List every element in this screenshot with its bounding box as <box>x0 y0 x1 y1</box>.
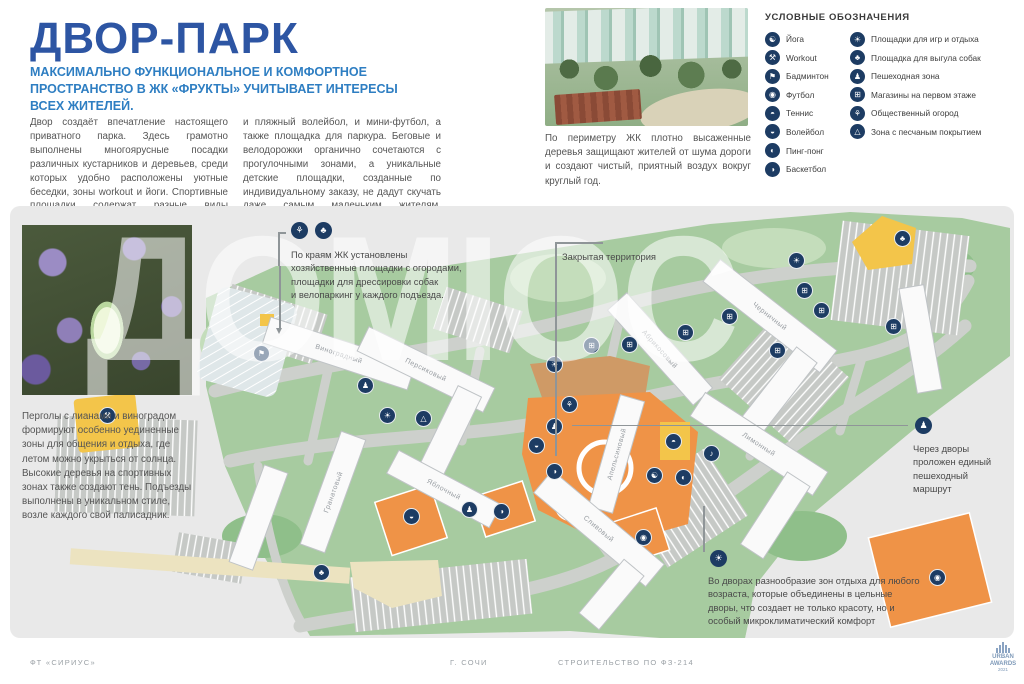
basketball-icon: ◑ <box>493 503 510 520</box>
yoga-icon: ☯ <box>646 467 663 484</box>
footer-law: СТРОИТЕЛЬСТВО ПО ФЗ-214 <box>558 658 694 667</box>
tennis-icon: ◓ <box>665 433 682 450</box>
legend-item: ◒Волейбол <box>765 125 849 139</box>
basketball-icon: ◑ <box>546 463 563 480</box>
shops-icon: ⊞ <box>769 342 786 359</box>
pedestrian-icon: ♟ <box>850 69 865 84</box>
aerial-photo-caption: По периметру ЖК плотно высаженные деревь… <box>545 132 751 189</box>
legend-item: △Зона с песчаным покрытием <box>850 125 1020 139</box>
playground-icon: ☀ <box>850 32 865 47</box>
playground-icon: ☀ <box>710 550 727 567</box>
sand-icon: △ <box>415 410 432 427</box>
legend-col-2: ☀Площадки для игр и отдыха♣Площадка для … <box>850 32 1020 144</box>
shops-icon: ⊞ <box>721 308 738 325</box>
workout-icon: ⚒ <box>765 50 780 65</box>
legend-item-label: Футбол <box>786 90 814 100</box>
legend-item-label: Магазины на первом этаже <box>871 90 976 100</box>
legend-item: ♟Пешеходная зона <box>850 69 1020 83</box>
badminton-icon: ⚑ <box>253 345 270 362</box>
footer-project: ФТ «СИРИУС» <box>30 658 96 667</box>
callout-edges: По краям ЖК установлены хозяйственные пл… <box>291 248 462 301</box>
dog-walking-icon: ♣ <box>894 230 911 247</box>
legend-item: ☀Площадки для игр и отдыха <box>850 32 1020 46</box>
urban-awards-text1: URBAN <box>986 654 1020 661</box>
volleyball-icon: ◒ <box>528 437 545 454</box>
legend-item: ♣Площадка для выгула собак <box>850 51 1020 65</box>
football-icon: ◉ <box>635 529 652 546</box>
legend-item-label: Общественный огород <box>871 108 958 118</box>
legend-item-label: Workout <box>786 53 817 63</box>
page-subtitle: МАКСИМАЛЬНО ФУНКЦИОНАЛЬНОЕ И КОМФОРТНОЕ … <box>30 64 410 115</box>
legend-heading: УСЛОВНЫЕ ОБОЗНАЧЕНИЯ <box>765 12 910 23</box>
football-icon: ◉ <box>765 87 780 102</box>
legend-item-label: Площадки для игр и отдыха <box>871 34 979 44</box>
legend-item-label: Йога <box>786 34 804 44</box>
legend-item: ⊞Магазины на первом этаже <box>850 88 1020 102</box>
yoga-icon: ☯ <box>765 32 780 47</box>
legend-item-label: Пешеходная зона <box>871 71 940 81</box>
shops-icon: ⊞ <box>885 318 902 335</box>
legend-item: ☯Йога <box>765 32 849 46</box>
garden-icon: ⚘ <box>291 222 308 239</box>
urban-awards-crown <box>986 642 1020 653</box>
legend-item-label: Баскетбол <box>786 164 826 174</box>
legend-col-1: ☯Йога⚒Workout⚑Бадминтон◉Футбол◓Теннис◒Во… <box>765 32 849 181</box>
legend-item: ◐Пинг-понг <box>765 144 849 158</box>
pedestrian-icon: ♟ <box>915 417 932 434</box>
aerial-photo-pergola <box>554 89 642 125</box>
dog-walking-icon: ♣ <box>850 50 865 65</box>
shops-icon: ⊞ <box>850 87 865 102</box>
legend-item: ◑Баскетбол <box>765 162 849 176</box>
badminton-icon: ⚑ <box>765 69 780 84</box>
volleyball-icon: ◒ <box>403 508 420 525</box>
urban-awards-text2: AWARDS <box>986 661 1020 668</box>
site-plan-map: ВиноградныйПерсиковыйЧерничныйАбрикосовы… <box>10 206 1014 638</box>
sand-icon: △ <box>850 124 865 139</box>
tennis-icon: ◓ <box>765 106 780 121</box>
playground-icon: ☀ <box>788 252 805 269</box>
legend-item-label: Площадка для выгула собак <box>871 53 981 63</box>
legend-item-label: Зона с песчаным покрытием <box>871 127 981 137</box>
callout-closed-territory: Закрытая территория <box>562 250 656 263</box>
pingpong-icon: ◐ <box>765 143 780 158</box>
playground-icon: ☀ <box>379 407 396 424</box>
page-title: ДВОР-ПАРК <box>30 14 299 64</box>
music-icon: ♪ <box>703 445 720 462</box>
callout-courtyards: Во дворах разнообразие зон отдыха для лю… <box>708 574 988 627</box>
pedestrian-icon: ♟ <box>461 501 478 518</box>
callout-route: Через дворы проложен единый пешеходный м… <box>913 442 1013 495</box>
urban-awards-year: 2021 <box>986 667 1020 672</box>
shops-icon: ⊞ <box>796 282 813 299</box>
brochure-page: ДВОР-ПАРК МАКСИМАЛЬНО ФУНКЦИОНАЛЬНОЕ И К… <box>0 0 1024 684</box>
shops-icon: ⊞ <box>813 302 830 319</box>
urban-awards-logo: URBAN AWARDS 2021 <box>986 642 1020 680</box>
basketball-icon: ◑ <box>765 162 780 177</box>
footer-city: Г. СОЧИ <box>450 658 488 667</box>
shops-icon: ⊞ <box>621 336 638 353</box>
shops-icon: ⊞ <box>677 324 694 341</box>
legend-item-label: Волейбол <box>786 127 824 137</box>
dog-walking-icon: ♣ <box>313 564 330 581</box>
aerial-photo <box>545 8 748 126</box>
garden-icon: ⚘ <box>561 396 578 413</box>
garden-icon: ⚘ <box>850 106 865 121</box>
legend-item: ◓Теннис <box>765 106 849 120</box>
callout-edges-arrow <box>276 328 282 334</box>
legend-item-label: Пинг-понг <box>786 146 824 156</box>
legend-item: ⚒Workout <box>765 51 849 65</box>
legend-item-label: Бадминтон <box>786 71 829 81</box>
pingpong-icon: ◐ <box>675 469 692 486</box>
pedestrian-icon: ♟ <box>357 377 374 394</box>
dog-walking-icon: ♣ <box>315 222 332 239</box>
pergola-text: Перголы с лианами и виноградом формируют… <box>22 410 194 524</box>
shops-icon: ⊞ <box>583 337 600 354</box>
legend-item: ◉Футбол <box>765 88 849 102</box>
legend-item: ⚘Общественный огород <box>850 106 1020 120</box>
legend-item: ⚑Бадминтон <box>765 69 849 83</box>
legend-item-label: Теннис <box>786 108 813 118</box>
volleyball-icon: ◒ <box>765 124 780 139</box>
